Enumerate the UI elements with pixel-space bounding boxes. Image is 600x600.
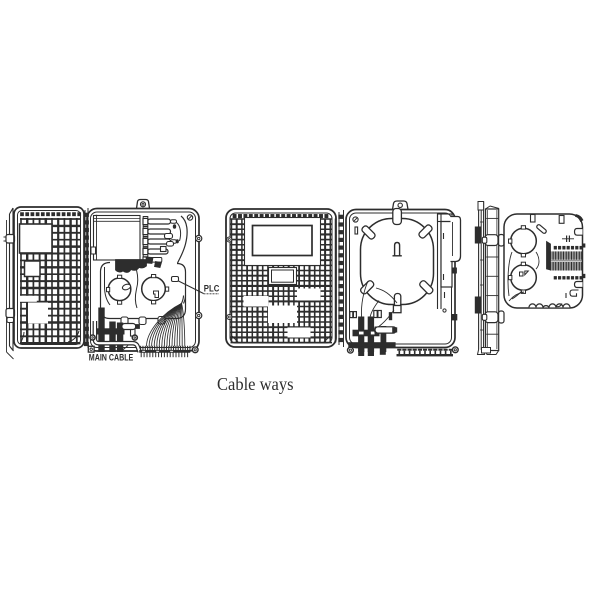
svg-text:Cable ways: Cable ways bbox=[217, 374, 294, 394]
svg-text:MAIN CABLE: MAIN CABLE bbox=[89, 352, 134, 362]
svg-text:PLC: PLC bbox=[204, 284, 220, 294]
